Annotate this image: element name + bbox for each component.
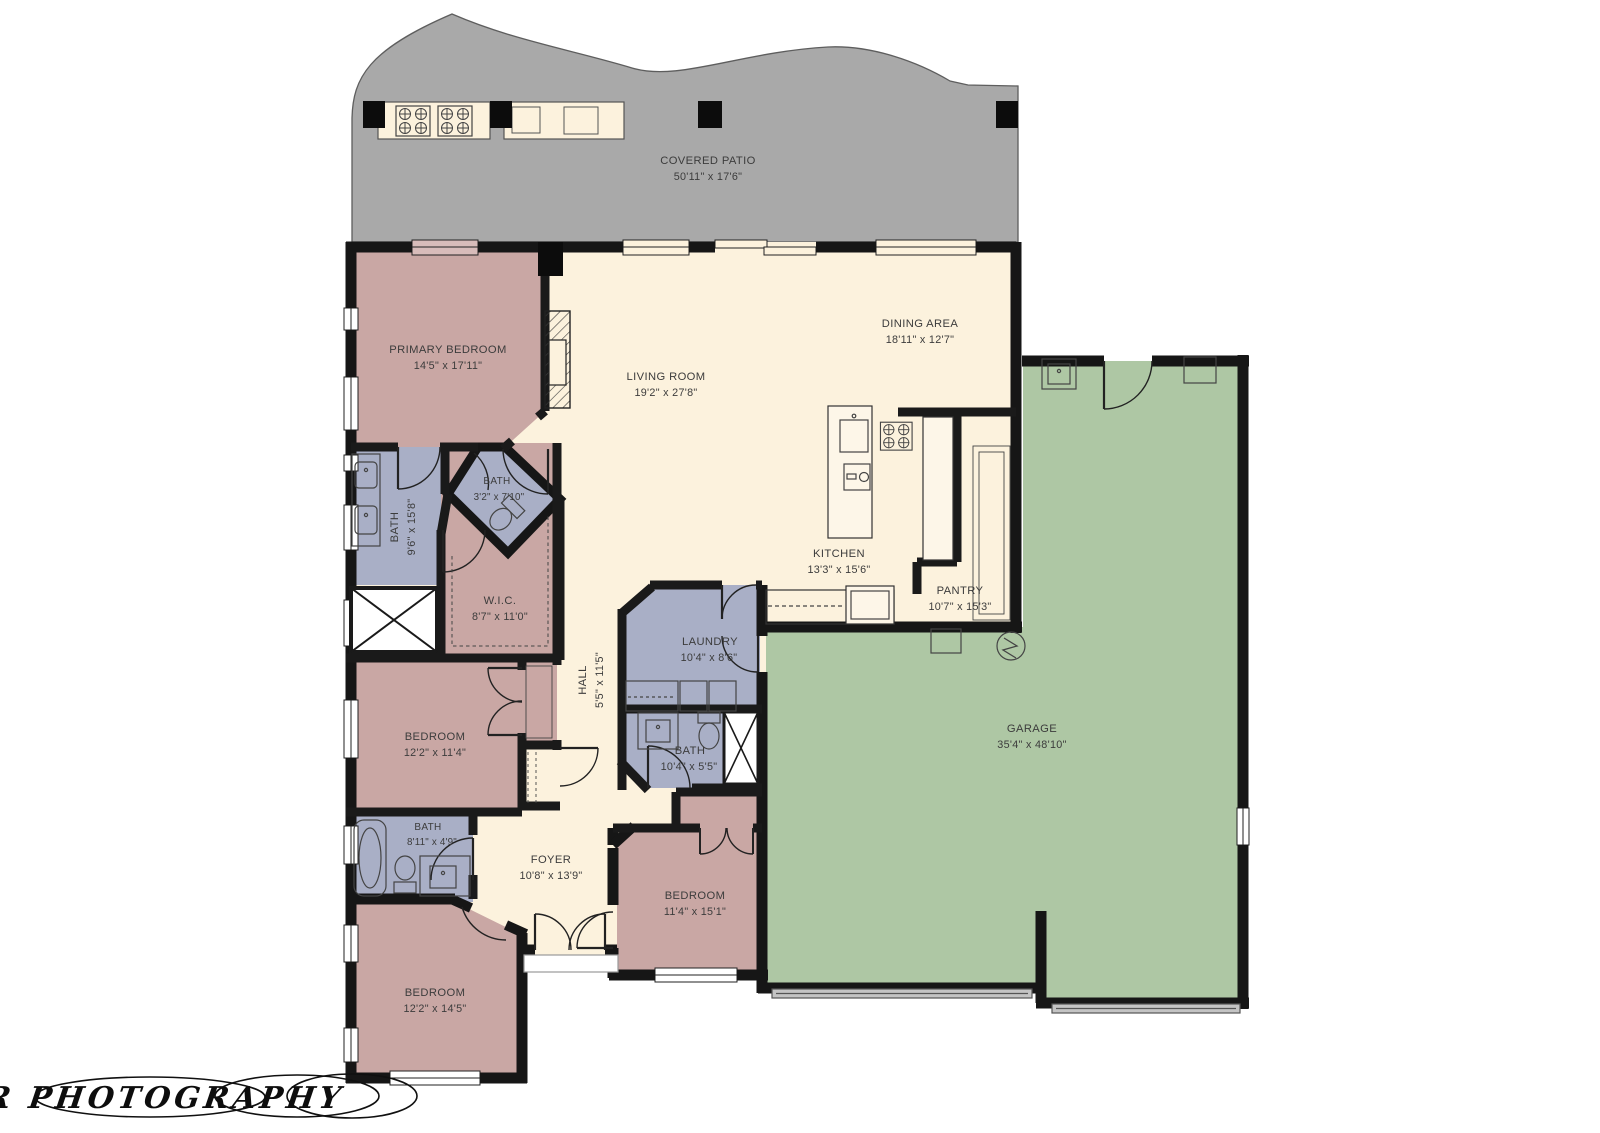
label-bedroom-4: BEDROOM xyxy=(405,987,466,999)
window xyxy=(344,1028,358,1062)
front-step xyxy=(524,955,618,972)
window xyxy=(1237,808,1249,845)
label-primary-bath: BATH xyxy=(389,512,401,543)
dims-bedroom-2: 12'2" x 11'4" xyxy=(404,747,466,759)
label-kitchen: KITCHEN xyxy=(813,548,865,560)
label-laundry: LAUNDRY xyxy=(682,636,738,648)
kitchen-island-icon xyxy=(828,406,872,538)
outdoor-counter-left xyxy=(378,102,490,139)
dims-garage: 35'4" x 48'10" xyxy=(997,739,1066,751)
dims-kitchen: 13'3" x 15'6" xyxy=(807,564,870,576)
label-covered-patio: COVERED PATIO xyxy=(660,155,756,167)
label-wic: W.I.C. xyxy=(484,595,517,607)
dims-toilet-bath: 3'2" x 7'10" xyxy=(474,492,525,503)
dims-pantry: 10'7" x 15'3" xyxy=(928,601,991,613)
label-bath-2: BATH xyxy=(675,745,706,757)
watermark-text: Bolier Photography xyxy=(0,1081,347,1116)
window xyxy=(623,240,689,255)
window xyxy=(655,968,737,982)
dims-bath-3: 8'11" x 4'9" xyxy=(407,837,457,848)
window xyxy=(344,308,358,330)
label-garage: GARAGE xyxy=(1007,723,1057,735)
label-pantry: PANTRY xyxy=(937,585,984,597)
garage-door-left xyxy=(772,989,1032,998)
window xyxy=(344,505,358,550)
window xyxy=(876,240,976,255)
garage-door-right xyxy=(1052,1004,1240,1013)
dims-covered-patio: 50'11" x 17'6" xyxy=(674,171,743,183)
shower-bath-2 xyxy=(724,712,758,784)
window xyxy=(412,240,478,255)
dims-bath-2: 10'4" x 5'5" xyxy=(661,761,718,773)
label-bath-3: BATH xyxy=(414,822,441,833)
floor-plan: COVERED PATIO 50'11" x 17'6" PRIMARY BED… xyxy=(0,0,1600,1133)
dims-laundry: 10'4" x 8'6" xyxy=(681,652,738,664)
label-toilet-bath: BATH xyxy=(483,476,510,487)
dims-foyer: 10'8" x 13'9" xyxy=(519,870,582,882)
label-bedroom-2: BEDROOM xyxy=(405,731,466,743)
window xyxy=(344,925,358,962)
label-foyer: FOYER xyxy=(531,854,572,866)
label-bedroom-3: BEDROOM xyxy=(665,890,726,902)
window xyxy=(344,826,358,864)
label-hall: HALL xyxy=(577,665,589,695)
shower-primary xyxy=(351,588,437,652)
dims-bedroom-3: 11'4" x 15'1" xyxy=(664,906,726,918)
dims-wic: 8'7" x 11'0" xyxy=(472,611,528,623)
dims-primary-bedroom: 14'5" x 17'11" xyxy=(414,360,483,372)
window xyxy=(344,700,358,758)
fireplace-icon xyxy=(545,311,570,408)
window xyxy=(344,377,358,430)
label-dining-area: DINING AREA xyxy=(882,318,959,330)
floor-plan-page: COVERED PATIO 50'11" x 17'6" PRIMARY BED… xyxy=(0,0,1600,1133)
dims-hall: 5'5" x 11'5" xyxy=(594,652,606,708)
label-primary-bedroom: PRIMARY BEDROOM xyxy=(389,344,506,356)
grill-icon xyxy=(438,106,472,136)
floor-bedroom-3-closet xyxy=(676,792,760,828)
wall-stub xyxy=(538,242,563,276)
dims-dining-area: 18'11" x 12'7" xyxy=(886,334,955,346)
dims-primary-bath: 9'6" x 15'8" xyxy=(406,499,418,556)
dims-bedroom-4: 12'2" x 14'5" xyxy=(403,1003,466,1015)
dims-living-room: 19'2" x 27'8" xyxy=(634,387,697,399)
label-living-room: LIVING ROOM xyxy=(627,371,706,383)
grill-icon xyxy=(396,106,430,136)
